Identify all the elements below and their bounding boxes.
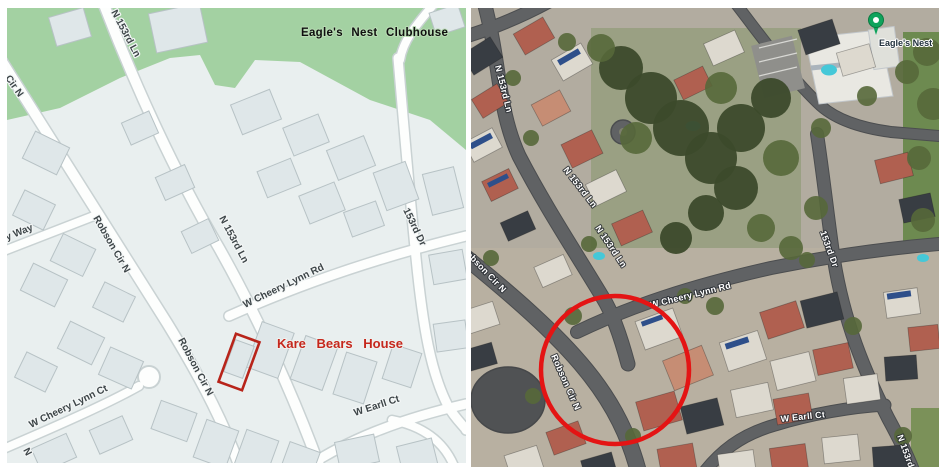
street-map-panel: Eagle's Nest Clubhouse Kare Bears House …	[7, 8, 466, 463]
pin-glyph	[873, 17, 879, 23]
satellite-map-image: N 153rd Ln N 153rd Ln N 153rd Ln Robson …	[471, 8, 939, 467]
street-map-image: Eagle's Nest Clubhouse Kare Bears House …	[7, 8, 466, 463]
satellite-map-panel: N 153rd Ln N 153rd Ln N 153rd Ln Robson …	[471, 8, 939, 467]
clubhouse-label: Eagle's Nest Clubhouse	[301, 27, 448, 39]
pin-label: Eagle's Nest	[879, 38, 932, 48]
kare-bears-label: Kare Bears House	[277, 336, 403, 351]
